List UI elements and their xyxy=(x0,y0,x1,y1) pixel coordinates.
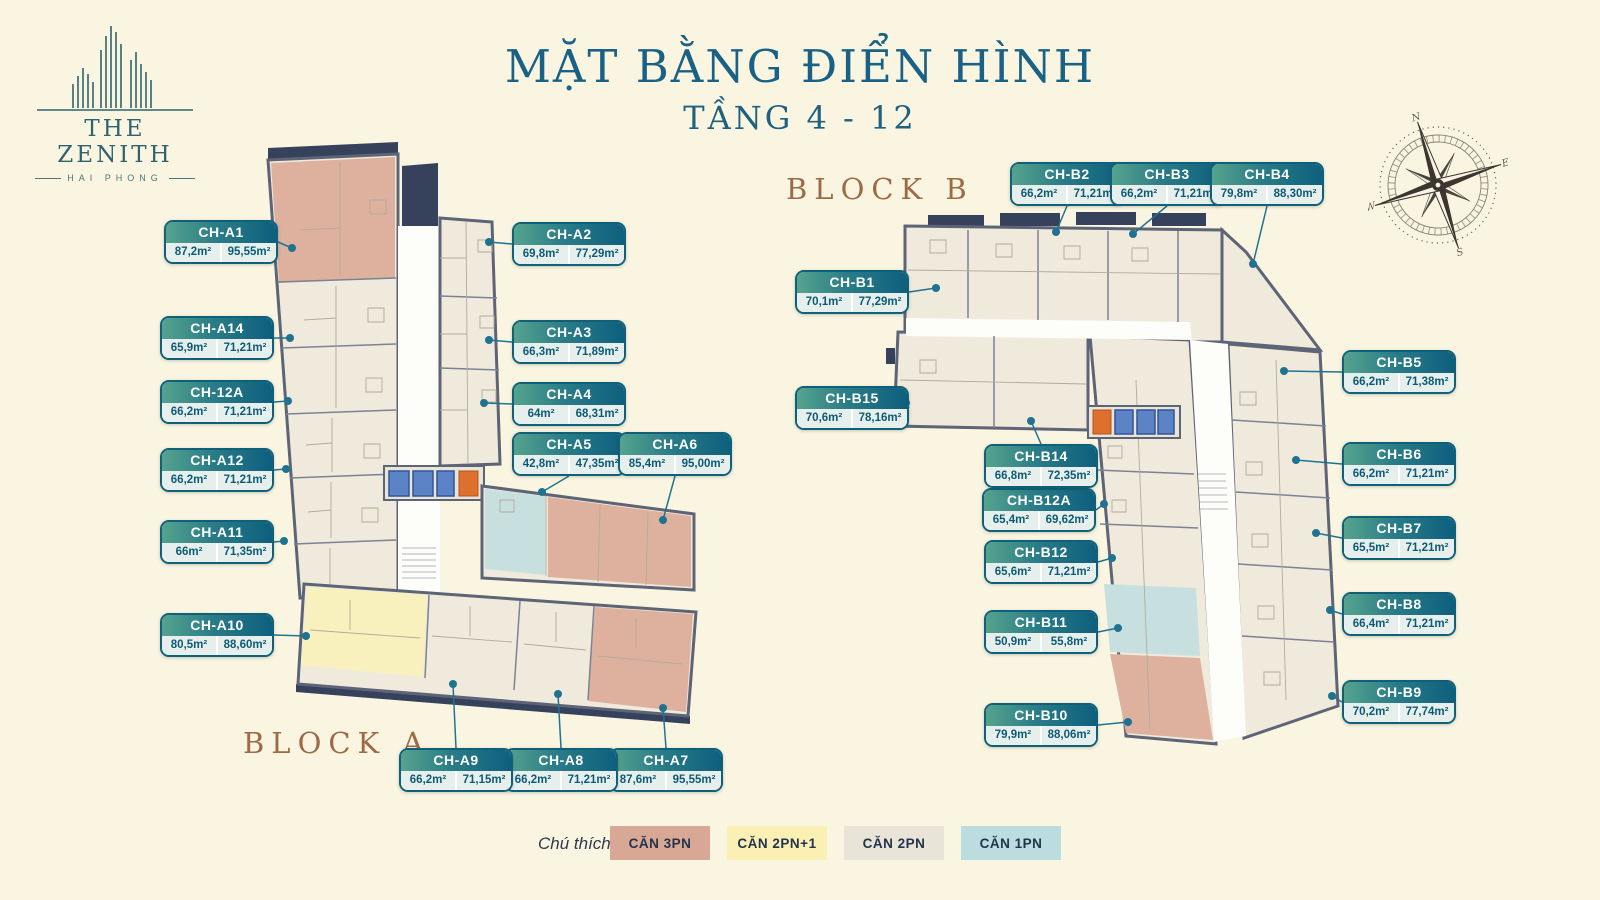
unit-id: CH-B14 xyxy=(986,446,1096,467)
unit-area-gross: 71,38m² xyxy=(1400,373,1454,392)
unit-area-gross: 95,00m² xyxy=(676,455,730,474)
leader-dot xyxy=(1052,228,1060,236)
leader-dot xyxy=(1124,718,1132,726)
unit-area-gross: 88,06m² xyxy=(1042,726,1096,745)
leader-line xyxy=(1253,206,1267,264)
unit-label-ch-a11: CH-A11 66m² 71,35m² xyxy=(160,520,274,564)
unit-area-gross: 95,55m² xyxy=(667,771,721,790)
unit-area-net: 70,1m² xyxy=(797,293,851,312)
unit-label-ch-b7: CH-B7 65,5m² 71,21m² xyxy=(1342,516,1456,560)
unit-label-ch-b12a: CH-B12A 65,4m² 69,62m² xyxy=(982,488,1096,532)
unit-area-gross: 77,29m² xyxy=(853,293,907,312)
unit-area-net: 66,8m² xyxy=(986,467,1040,486)
leader-dot xyxy=(480,399,488,407)
unit-id: CH-B3 xyxy=(1112,164,1222,185)
unit-id: CH-12A xyxy=(162,382,272,403)
unit-id: CH-B7 xyxy=(1344,518,1454,539)
unit-area-net: 85,4m² xyxy=(620,455,674,474)
unit-id: CH-B4 xyxy=(1212,164,1322,185)
unit-area-net: 66,4m² xyxy=(1344,615,1398,634)
unit-label-ch-a9: CH-A9 66,2m² 71,15m² xyxy=(399,748,513,792)
unit-area-net: 79,8m² xyxy=(1212,185,1266,204)
unit-label-ch-a5: CH-A5 42,8m² 47,35m² xyxy=(512,432,626,476)
unit-areas: 79,9m² 88,06m² xyxy=(986,726,1096,745)
unit-areas: 64m² 68,31m² xyxy=(514,405,624,424)
unit-area-net: 65,5m² xyxy=(1344,539,1398,558)
unit-label-ch-b1: CH-B1 70,1m² 77,29m² xyxy=(795,270,909,314)
floorplan-poster: CH-A1 87,2m² 95,55m² CH-A2 69,8m² 77,29m… xyxy=(0,0,1600,900)
leader-line xyxy=(1056,206,1067,232)
unit-areas: 50,9m² 55,8m² xyxy=(986,633,1096,652)
unit-areas: 66,2m² 71,21m² xyxy=(506,771,616,790)
leader-line xyxy=(1133,206,1167,234)
unit-id: CH-A11 xyxy=(162,522,272,543)
leader-dot xyxy=(1280,367,1288,375)
leader-line xyxy=(1284,371,1342,372)
leader-line xyxy=(1098,722,1128,725)
leader-dot xyxy=(1108,554,1116,562)
unit-area-net: 70,2m² xyxy=(1344,703,1398,722)
unit-area-gross: 95,55m² xyxy=(222,243,276,262)
leader-dot xyxy=(282,465,290,473)
leader-dot xyxy=(1312,529,1320,537)
unit-area-gross: 68,31m² xyxy=(570,405,624,424)
unit-id: CH-A10 xyxy=(162,615,272,636)
unit-label-ch-a2: CH-A2 69,8m² 77,29m² xyxy=(512,222,626,266)
unit-areas: 70,6m² 78,16m² xyxy=(797,409,907,428)
unit-areas: 66,2m² 71,21m² xyxy=(1012,185,1122,204)
unit-areas: 66,2m² 71,21m² xyxy=(1112,185,1222,204)
unit-areas: 65,6m² 71,21m² xyxy=(986,563,1096,582)
unit-areas: 66,3m² 71,89m² xyxy=(514,343,624,362)
leader-line xyxy=(453,684,456,748)
unit-label-ch-b3: CH-B3 66,2m² 71,21m² xyxy=(1110,162,1224,206)
unit-id: CH-B9 xyxy=(1344,682,1454,703)
leader-dot xyxy=(302,632,310,640)
unit-id: CH-B15 xyxy=(797,388,907,409)
unit-areas: 70,1m² 77,29m² xyxy=(797,293,907,312)
unit-areas: 42,8m² 47,35m² xyxy=(514,455,624,474)
unit-id: CH-B12A xyxy=(984,490,1094,511)
leader-line xyxy=(663,476,675,520)
unit-area-net: 50,9m² xyxy=(986,633,1040,652)
leader-dot xyxy=(1292,456,1300,464)
unit-label-ch-a1: CH-A1 87,2m² 95,55m² xyxy=(164,220,278,264)
unit-area-gross: 69,62m² xyxy=(1040,511,1094,530)
unit-area-gross: 71,21m² xyxy=(218,471,272,490)
unit-areas: 66,2m² 71,21m² xyxy=(162,403,272,422)
leader-dot xyxy=(659,704,667,712)
unit-area-net: 65,9m² xyxy=(162,339,216,358)
unit-label-ch-b5: CH-B5 66,2m² 71,38m² xyxy=(1342,350,1456,394)
unit-id: CH-A6 xyxy=(620,434,730,455)
unit-area-net: 70,6m² xyxy=(797,409,851,428)
unit-label-ch-b10: CH-B10 79,9m² 88,06m² xyxy=(984,703,1098,747)
unit-area-gross: 71,89m² xyxy=(570,343,624,362)
unit-area-net: 42,8m² xyxy=(514,455,568,474)
unit-label-ch-a4: CH-A4 64m² 68,31m² xyxy=(512,382,626,426)
unit-label-ch-b9: CH-B9 70,2m² 77,74m² xyxy=(1342,680,1456,724)
unit-id: CH-A12 xyxy=(162,450,272,471)
unit-id: CH-A7 xyxy=(611,750,721,771)
unit-area-net: 80,5m² xyxy=(162,636,216,655)
unit-area-gross: 71,15m² xyxy=(457,771,511,790)
unit-label-ch-b2: CH-B2 66,2m² 71,21m² xyxy=(1010,162,1124,206)
leader-dot xyxy=(538,488,546,496)
leader-dot xyxy=(1328,692,1336,700)
unit-area-gross: 71,21m² xyxy=(218,403,272,422)
unit-label-ch-b11: CH-B11 50,9m² 55,8m² xyxy=(984,610,1098,654)
unit-id: CH-B2 xyxy=(1012,164,1122,185)
unit-label-ch-b8: CH-B8 66,4m² 71,21m² xyxy=(1342,592,1456,636)
unit-id: CH-A9 xyxy=(401,750,511,771)
unit-id: CH-B11 xyxy=(986,612,1096,633)
unit-areas: 66,2m² 71,38m² xyxy=(1344,373,1454,392)
unit-label-ch-b4: CH-B4 79,8m² 88,30m² xyxy=(1210,162,1324,206)
unit-areas: 66m² 71,35m² xyxy=(162,543,272,562)
leader-dot xyxy=(554,690,562,698)
unit-areas: 65,4m² 69,62m² xyxy=(984,511,1094,530)
unit-area-net: 65,6m² xyxy=(986,563,1040,582)
unit-area-net: 66m² xyxy=(162,543,216,562)
unit-area-net: 79,9m² xyxy=(986,726,1040,745)
unit-areas: 66,4m² 71,21m² xyxy=(1344,615,1454,634)
leader-line xyxy=(558,694,561,748)
unit-area-gross: 47,35m² xyxy=(570,455,624,474)
unit-id: CH-B10 xyxy=(986,705,1096,726)
unit-area-net: 66,2m² xyxy=(1344,465,1398,484)
unit-label-ch-b15: CH-B15 70,6m² 78,16m² xyxy=(795,386,909,430)
unit-area-gross: 71,21m² xyxy=(1400,615,1454,634)
unit-label-ch-a14: CH-A14 65,9m² 71,21m² xyxy=(160,316,274,360)
unit-label-ch-12a: CH-12A 66,2m² 71,21m² xyxy=(160,380,274,424)
unit-id: CH-A5 xyxy=(514,434,624,455)
unit-area-gross: 71,21m² xyxy=(1400,539,1454,558)
unit-area-gross: 88,30m² xyxy=(1268,185,1322,204)
unit-area-net: 66,2m² xyxy=(401,771,455,790)
unit-label-ch-a6: CH-A6 85,4m² 95,00m² xyxy=(618,432,732,476)
unit-id: CH-A1 xyxy=(166,222,276,243)
unit-area-net: 64m² xyxy=(514,405,568,424)
leader-dot xyxy=(485,238,493,246)
unit-areas: 70,2m² 77,74m² xyxy=(1344,703,1454,722)
unit-area-net: 87,2m² xyxy=(166,243,220,262)
unit-areas: 66,8m² 72,35m² xyxy=(986,467,1096,486)
unit-id: CH-A8 xyxy=(506,750,616,771)
unit-id: CH-B1 xyxy=(797,272,907,293)
unit-areas: 66,2m² 71,21m² xyxy=(1344,465,1454,484)
unit-area-gross: 71,21m² xyxy=(1042,563,1096,582)
leader-dot xyxy=(1129,230,1137,238)
unit-areas: 80,5m² 88,60m² xyxy=(162,636,272,655)
unit-label-ch-a7: CH-A7 87,6m² 95,55m² xyxy=(609,748,723,792)
unit-area-gross: 78,16m² xyxy=(853,409,907,428)
unit-area-gross: 72,35m² xyxy=(1042,467,1096,486)
leader-line xyxy=(663,708,666,748)
unit-id: CH-A14 xyxy=(162,318,272,339)
leader-dot xyxy=(286,334,294,342)
unit-areas: 65,5m² 71,21m² xyxy=(1344,539,1454,558)
leader-dot xyxy=(284,397,292,405)
leader-line xyxy=(542,476,569,492)
unit-areas: 87,2m² 95,55m² xyxy=(166,243,276,262)
leader-dot xyxy=(288,244,296,252)
unit-id: CH-B12 xyxy=(986,542,1096,563)
leader-dot xyxy=(1326,606,1334,614)
unit-area-gross: 88,60m² xyxy=(218,636,272,655)
unit-area-gross: 71,35m² xyxy=(218,543,272,562)
leader-line xyxy=(1296,460,1342,464)
unit-area-net: 66,2m² xyxy=(162,471,216,490)
unit-areas: 66,2m² 71,21m² xyxy=(162,471,272,490)
unit-area-gross: 77,74m² xyxy=(1400,703,1454,722)
unit-area-net: 66,2m² xyxy=(162,403,216,422)
unit-label-ch-a3: CH-A3 66,3m² 71,89m² xyxy=(512,320,626,364)
leader-dot xyxy=(659,516,667,524)
unit-area-net: 66,3m² xyxy=(514,343,568,362)
unit-label-ch-b12: CH-B12 65,6m² 71,21m² xyxy=(984,540,1098,584)
unit-area-net: 66,2m² xyxy=(1344,373,1398,392)
unit-area-net: 69,8m² xyxy=(514,245,568,264)
unit-area-gross: 77,29m² xyxy=(570,245,624,264)
leader-dot xyxy=(932,284,940,292)
unit-area-gross: 55,8m² xyxy=(1042,633,1096,652)
unit-areas: 85,4m² 95,00m² xyxy=(620,455,730,474)
unit-label-ch-b6: CH-B6 66,2m² 71,21m² xyxy=(1342,442,1456,486)
unit-area-gross: 71,21m² xyxy=(562,771,616,790)
leader-dot xyxy=(280,537,288,545)
unit-area-gross: 71,21m² xyxy=(218,339,272,358)
unit-id: CH-A3 xyxy=(514,322,624,343)
leader-dot xyxy=(1027,417,1035,425)
unit-area-net: 65,4m² xyxy=(984,511,1038,530)
leader-dot xyxy=(1114,624,1122,632)
unit-areas: 87,6m² 95,55m² xyxy=(611,771,721,790)
unit-area-gross: 71,21m² xyxy=(1400,465,1454,484)
unit-areas: 66,2m² 71,15m² xyxy=(401,771,511,790)
leader-line xyxy=(484,403,512,404)
leader-dot xyxy=(485,336,493,344)
unit-id: CH-B5 xyxy=(1344,352,1454,373)
unit-id: CH-B6 xyxy=(1344,444,1454,465)
unit-areas: 65,9m² 71,21m² xyxy=(162,339,272,358)
unit-area-net: 66,2m² xyxy=(1112,185,1166,204)
leader-line xyxy=(909,288,936,292)
leader-dot xyxy=(449,680,457,688)
unit-label-ch-b14: CH-B14 66,8m² 72,35m² xyxy=(984,444,1098,488)
unit-area-net: 87,6m² xyxy=(611,771,665,790)
unit-areas: 69,8m² 77,29m² xyxy=(514,245,624,264)
leader-dot xyxy=(1249,260,1257,268)
unit-label-ch-a8: CH-A8 66,2m² 71,21m² xyxy=(504,748,618,792)
unit-area-net: 66,2m² xyxy=(506,771,560,790)
leader-dot xyxy=(1100,500,1108,508)
unit-id: CH-A2 xyxy=(514,224,624,245)
unit-area-net: 66,2m² xyxy=(1012,185,1066,204)
unit-areas: 79,8m² 88,30m² xyxy=(1212,185,1322,204)
leader-line xyxy=(274,635,306,636)
unit-id: CH-A4 xyxy=(514,384,624,405)
unit-label-ch-a10: CH-A10 80,5m² 88,60m² xyxy=(160,613,274,657)
unit-id: CH-B8 xyxy=(1344,594,1454,615)
unit-label-ch-a12: CH-A12 66,2m² 71,21m² xyxy=(160,448,274,492)
